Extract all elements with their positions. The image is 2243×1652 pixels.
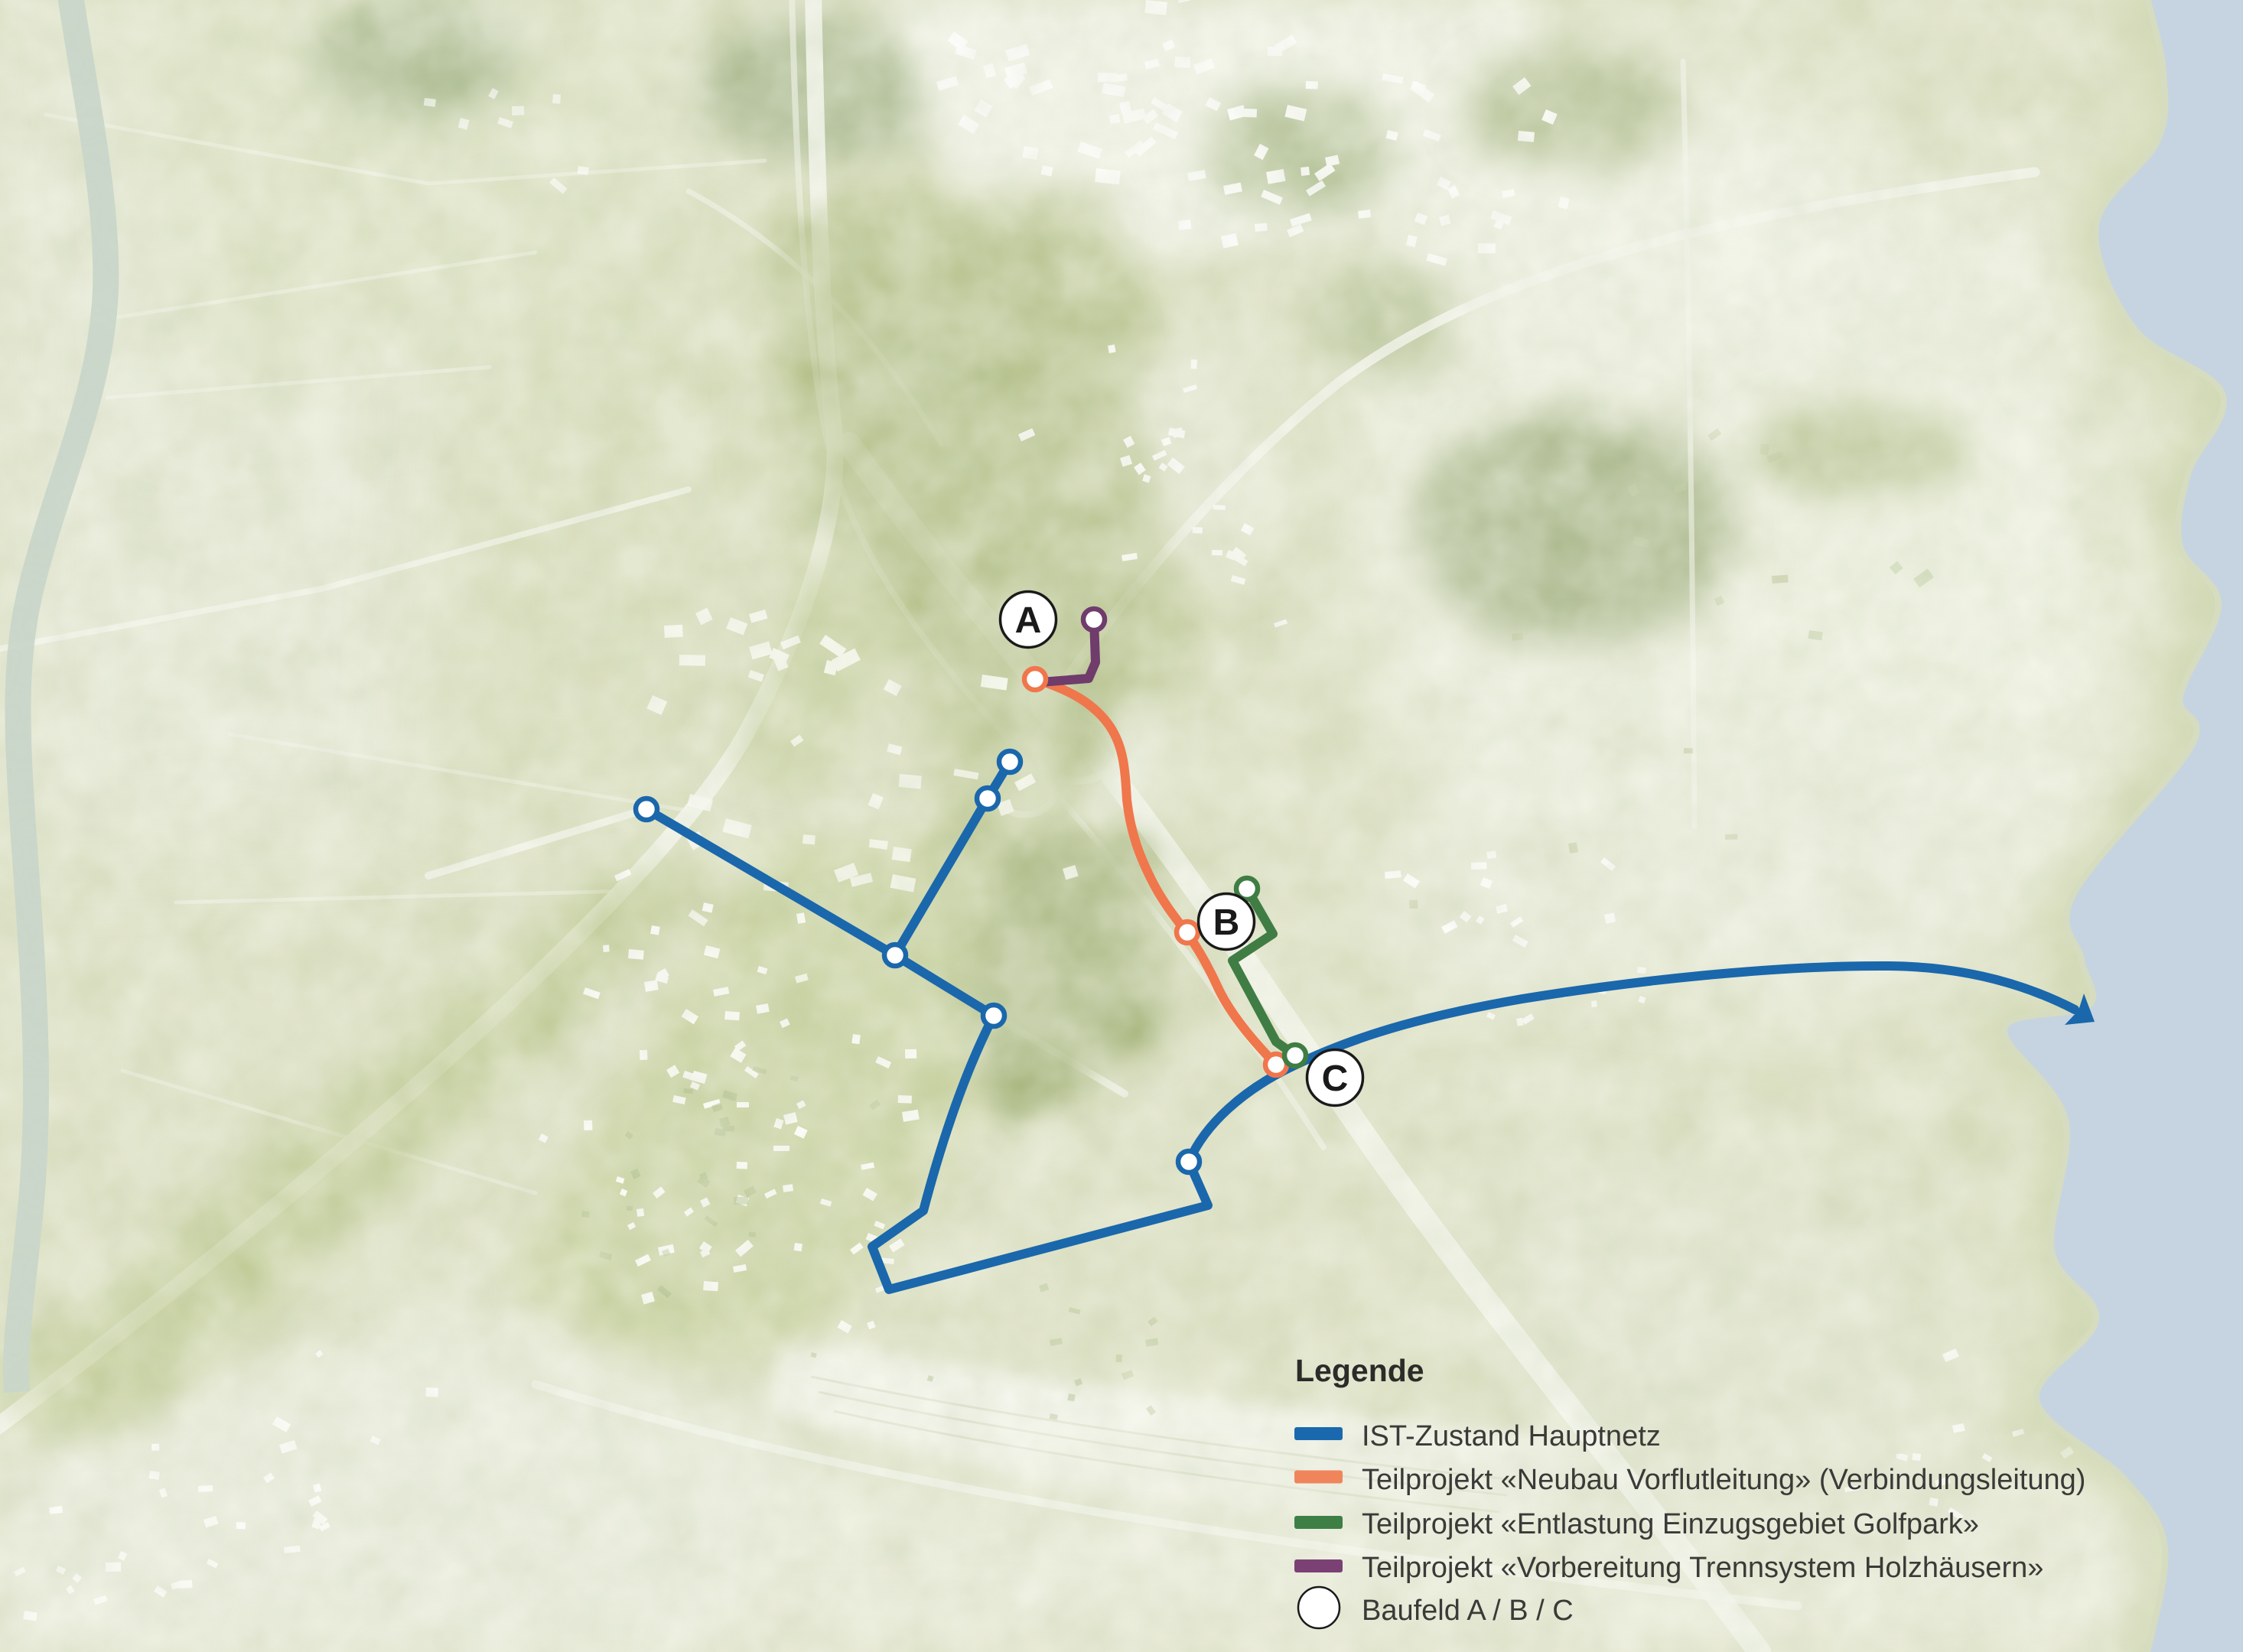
svg-text:Legende: Legende <box>1295 1353 1424 1388</box>
svg-text:Teilprojekt «Vorbereitung Tren: Teilprojekt «Vorbereitung Trennsystem Ho… <box>1362 1552 2043 1584</box>
svg-text:Baufeld A / B / C: Baufeld A / B / C <box>1362 1595 1574 1627</box>
svg-text:B: B <box>1213 902 1240 943</box>
svg-text:IST-Zustand Hauptnetz: IST-Zustand Hauptnetz <box>1362 1420 1661 1452</box>
svg-text:C: C <box>1322 1059 1349 1099</box>
svg-text:Teilprojekt «Entlastung Einzug: Teilprojekt «Entlastung Einzugsgebiet Go… <box>1362 1508 1979 1540</box>
svg-text:Teilprojekt «Neubau Vorflutlei: Teilprojekt «Neubau Vorflutleitung» (Ver… <box>1362 1464 2085 1496</box>
svg-text:A: A <box>1015 600 1042 641</box>
